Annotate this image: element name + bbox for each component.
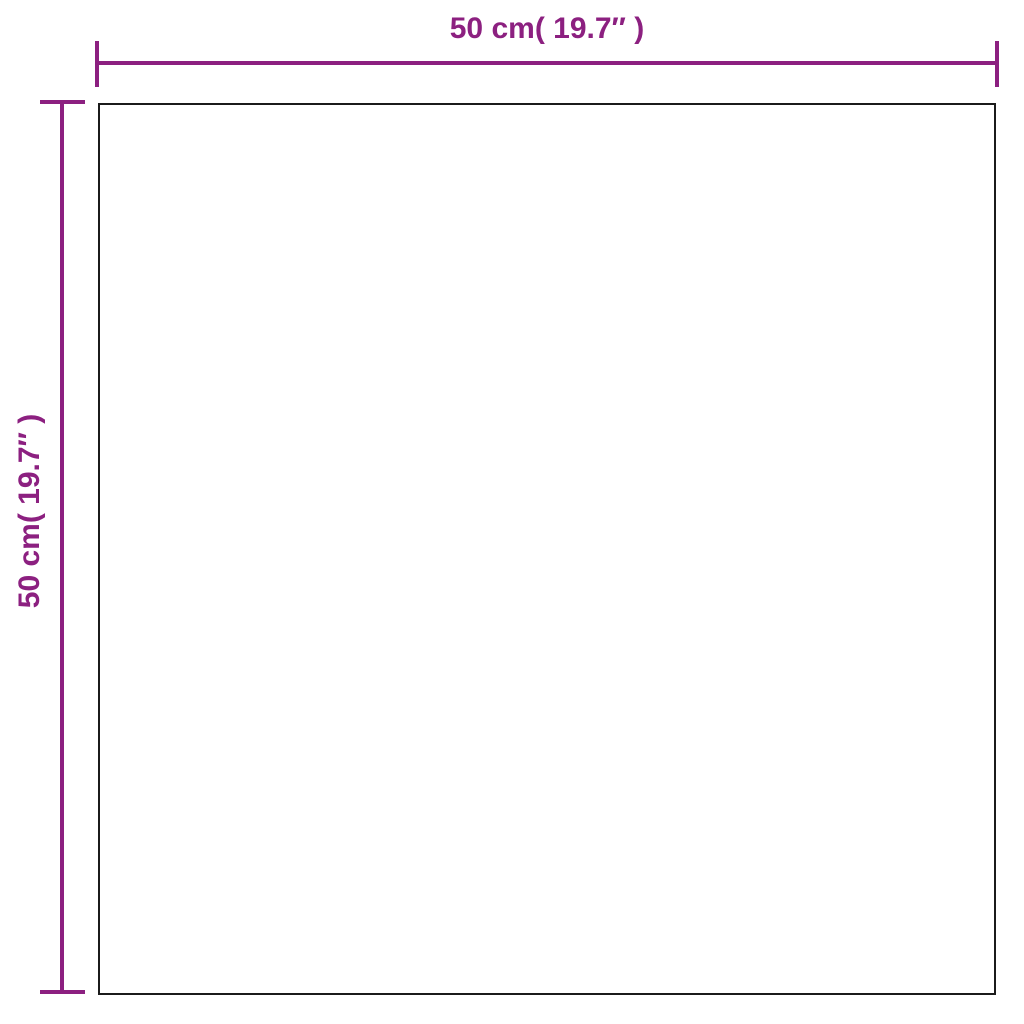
height-dimension-label: 50 cm( 19.7″ ) bbox=[9, 414, 51, 608]
width-dimension-label: 50 cm( 19.7″ ) bbox=[97, 8, 997, 50]
panel-outline bbox=[98, 103, 996, 995]
product-dimension-diagram: 50 cm( 19.7″ ) 50 cm( 19.7″ ) bbox=[0, 0, 1024, 1024]
width-dimension-line bbox=[97, 61, 997, 65]
height-dimension-line bbox=[60, 101, 64, 993]
height-dimension-tick-top bbox=[40, 100, 85, 104]
height-dimension-tick-bottom bbox=[40, 990, 85, 994]
